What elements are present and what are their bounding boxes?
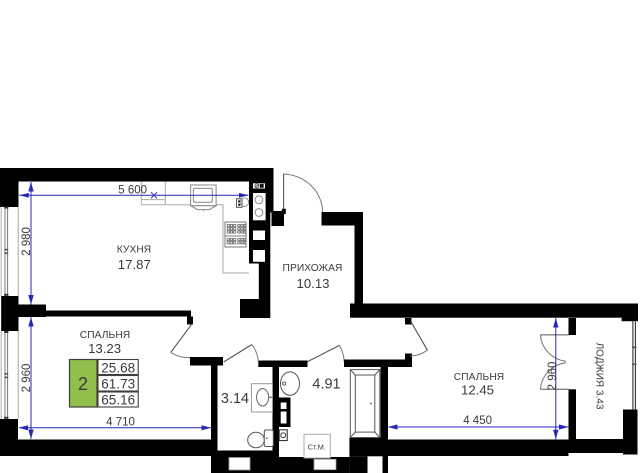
svg-text:4 710: 4 710	[106, 417, 135, 429]
svg-text:КУХНЯ: КУХНЯ	[117, 245, 152, 256]
svg-text:10.13: 10.13	[296, 276, 329, 291]
svg-text:17.87: 17.87	[118, 257, 151, 272]
svg-text:4.91: 4.91	[312, 377, 340, 393]
svg-text:3.14: 3.14	[221, 391, 249, 407]
svg-text:25.68: 25.68	[101, 360, 135, 375]
svg-text:ЛОДЖИЯ 3.43: ЛОДЖИЯ 3.43	[594, 343, 605, 410]
svg-text:2 980: 2 980	[21, 227, 33, 256]
svg-text:2 960: 2 960	[21, 364, 33, 393]
svg-text:Ст.М.: Ст.М.	[308, 443, 326, 452]
svg-text:СПАЛЬНЯ: СПАЛЬНЯ	[80, 330, 130, 341]
svg-text:5 600: 5 600	[118, 185, 147, 197]
svg-text:2: 2	[78, 374, 88, 394]
svg-text:13.23: 13.23	[88, 341, 121, 356]
svg-text:ПРИХОЖАЯ: ПРИХОЖАЯ	[283, 263, 343, 274]
svg-text:65.16: 65.16	[101, 392, 135, 407]
svg-text:61.73: 61.73	[101, 377, 135, 392]
svg-text:4 450: 4 450	[463, 415, 492, 427]
svg-text:2 960: 2 960	[547, 362, 559, 391]
svg-text:12.45: 12.45	[461, 382, 494, 397]
